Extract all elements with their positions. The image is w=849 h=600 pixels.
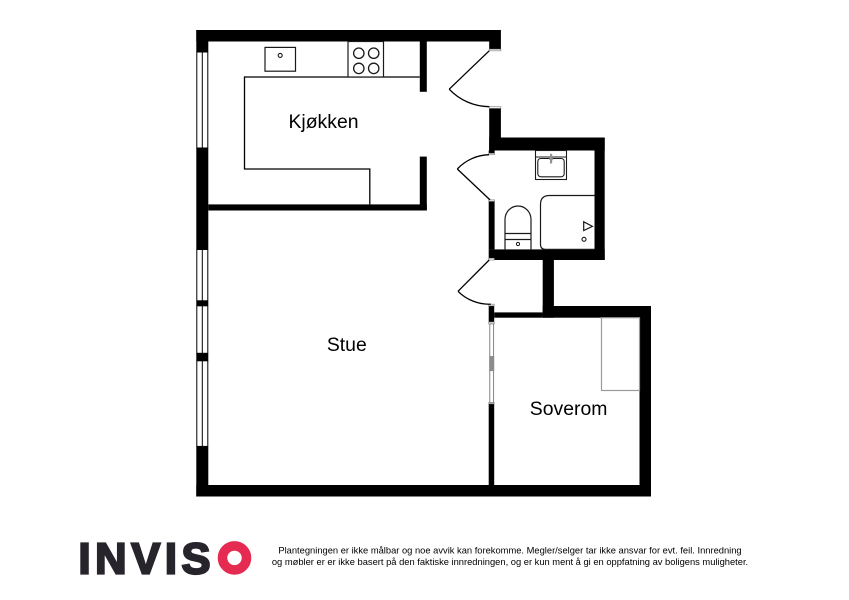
svg-text:Soverom: Soverom [530,398,608,420]
svg-text:Stue: Stue [327,334,367,356]
svg-text:Kjøkken: Kjøkken [288,111,358,133]
svg-text:og møbler er er ikke basert på: og møbler er er ikke basert på den fakti… [272,557,748,567]
svg-text:INVIS: INVIS [79,536,216,584]
svg-text:Plantegningen er ikke målbar o: Plantegningen er ikke målbar og noe avvi… [278,546,741,556]
